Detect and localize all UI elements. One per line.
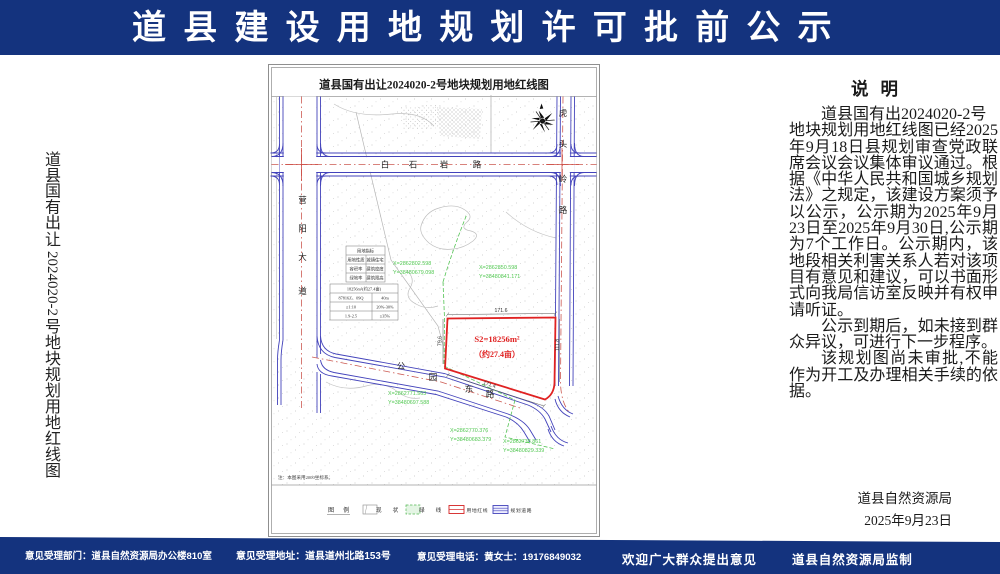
svg-text:111.8: 111.8	[555, 339, 561, 351]
svg-text:Y=38480841.171: Y=38480841.171	[479, 274, 520, 280]
svg-text:X=2862770.376: X=2862770.376	[450, 428, 488, 434]
svg-text:有: 有	[45, 198, 61, 216]
svg-text:路: 路	[486, 389, 495, 399]
svg-text:绿地率: 绿地率	[350, 275, 364, 282]
svg-text:18256m²(约27.4亩): 18256m²(约27.4亩)	[347, 286, 382, 293]
svg-text:X=2862802.598: X=2862802.598	[393, 261, 431, 267]
svg-text:园: 园	[429, 372, 438, 382]
svg-text:路: 路	[473, 160, 482, 170]
svg-text:X=2862771.563: X=2862771.563	[388, 391, 426, 397]
svg-text:县: 县	[45, 168, 61, 185]
svg-text:2024020-2: 2024020-2	[44, 251, 60, 316]
svg-text:用地红线: 用地红线	[467, 507, 489, 514]
svg-text:容积率: 容积率	[350, 266, 364, 273]
svg-text:红: 红	[45, 430, 61, 448]
svg-text:大: 大	[298, 252, 307, 262]
svg-text:号: 号	[45, 318, 61, 336]
svg-text:Y=38480829.339: Y=38480829.339	[503, 448, 544, 454]
svg-text:Y=38480683.379: Y=38480683.379	[450, 437, 491, 443]
svg-text:79.6: 79.6	[438, 336, 444, 346]
svg-text:规: 规	[45, 366, 61, 384]
svg-text:87816Z、09Q: 87816Z、09Q	[338, 296, 364, 301]
svg-text:阳: 阳	[298, 224, 307, 234]
svg-text:S2=18256m²: S2=18256m²	[474, 334, 520, 344]
svg-text:X=2862850.598: X=2862850.598	[479, 265, 517, 271]
svg-text:道县国有出让2024020-2号地块规划用地红线图: 道县国有出让2024020-2号地块规划用地红线图	[319, 78, 549, 92]
svg-text:让: 让	[45, 231, 61, 249]
svg-text:地: 地	[45, 334, 61, 352]
svg-text:（约27.4亩）: （约27.4亩）	[474, 349, 520, 359]
svg-text:X=2862738.861: X=2862738.861	[503, 439, 541, 445]
svg-text:图: 图	[45, 463, 61, 480]
svg-text:道: 道	[298, 286, 307, 296]
svg-text:现状: 现状	[376, 506, 409, 514]
svg-text:建筑限高: 建筑限高	[366, 275, 384, 282]
svg-text:Y=38480697.588: Y=38480697.588	[388, 400, 429, 406]
svg-text:白: 白	[381, 160, 390, 170]
svg-text:线: 线	[45, 446, 61, 464]
svg-text:用地指标: 用地指标	[357, 248, 375, 255]
svg-text:用地性质: 用地性质	[347, 257, 365, 264]
svg-text:地: 地	[45, 414, 61, 432]
svg-text:道: 道	[45, 151, 61, 169]
svg-text:图例: 图例	[328, 506, 358, 514]
svg-text:虎: 虎	[559, 108, 568, 118]
svg-text:规划道路: 规划道路	[511, 507, 533, 514]
svg-text:块: 块	[45, 350, 61, 368]
svg-text:1.9-2.5: 1.9-2.5	[345, 314, 357, 319]
svg-text:东: 东	[465, 384, 474, 394]
svg-text:用: 用	[45, 399, 61, 416]
svg-text:出: 出	[45, 214, 61, 232]
svg-text:国: 国	[45, 184, 61, 201]
svg-text:40m: 40m	[381, 296, 389, 301]
svg-text:路: 路	[559, 205, 568, 215]
svg-text:头: 头	[559, 139, 568, 149]
svg-text:岩: 岩	[440, 160, 449, 170]
svg-text:营: 营	[298, 195, 307, 205]
svg-text:注：本图采用2000坐标系。: 注：本图采用2000坐标系。	[278, 474, 333, 481]
svg-text:Y=38480679.098: Y=38480679.098	[393, 270, 434, 276]
svg-text:石: 石	[409, 160, 418, 170]
svg-text:建筑密度: 建筑密度	[366, 266, 384, 273]
svg-text:绿线: 绿线	[419, 506, 452, 514]
svg-text:公: 公	[397, 361, 406, 371]
svg-text:20%-30%: 20%-30%	[376, 305, 394, 310]
svg-text:岭: 岭	[559, 174, 568, 184]
svg-text:≤1:10: ≤1:10	[346, 305, 356, 310]
svg-text:划: 划	[45, 382, 61, 400]
svg-text:城镇住宅: 城镇住宅	[366, 257, 384, 264]
svg-text:≥35%: ≥35%	[380, 314, 391, 319]
svg-text:171.6: 171.6	[495, 308, 508, 314]
